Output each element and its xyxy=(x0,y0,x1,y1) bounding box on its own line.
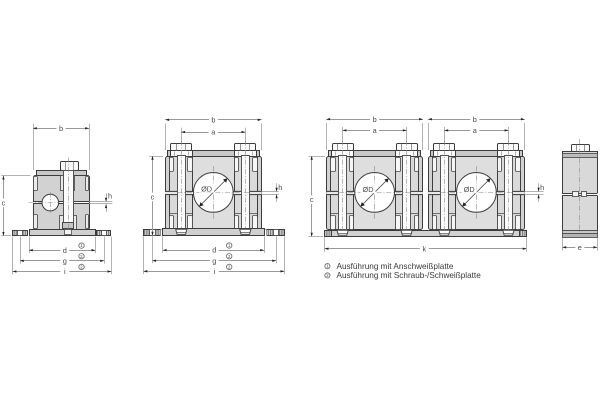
svg-text:k: k xyxy=(422,244,426,253)
svg-text:Ausführung mit Schraub-/Schwei: Ausführung mit Schraub-/Schweißplatte xyxy=(337,271,482,280)
svg-text:g: g xyxy=(63,256,67,265)
svg-text:b: b xyxy=(373,115,377,124)
svg-text:h: h xyxy=(278,183,282,192)
svg-text:h: h xyxy=(108,191,112,200)
svg-text:ØD: ØD xyxy=(464,185,475,194)
svg-text:g: g xyxy=(212,256,216,265)
svg-text:h: h xyxy=(540,183,544,192)
svg-text:Ausführung mit Anschweißplatte: Ausführung mit Anschweißplatte xyxy=(337,262,454,271)
svg-text:ØD: ØD xyxy=(201,184,212,193)
svg-text:ØD: ØD xyxy=(363,185,374,194)
svg-text:e: e xyxy=(578,243,582,252)
svg-text:b: b xyxy=(211,115,215,124)
svg-text:b: b xyxy=(59,124,63,133)
svg-text:c: c xyxy=(310,195,314,204)
svg-text:b: b xyxy=(473,115,477,124)
svg-text:c: c xyxy=(151,193,155,202)
svg-text:d: d xyxy=(63,246,67,255)
svg-text:c: c xyxy=(2,198,6,207)
svg-text:d: d xyxy=(212,246,216,255)
